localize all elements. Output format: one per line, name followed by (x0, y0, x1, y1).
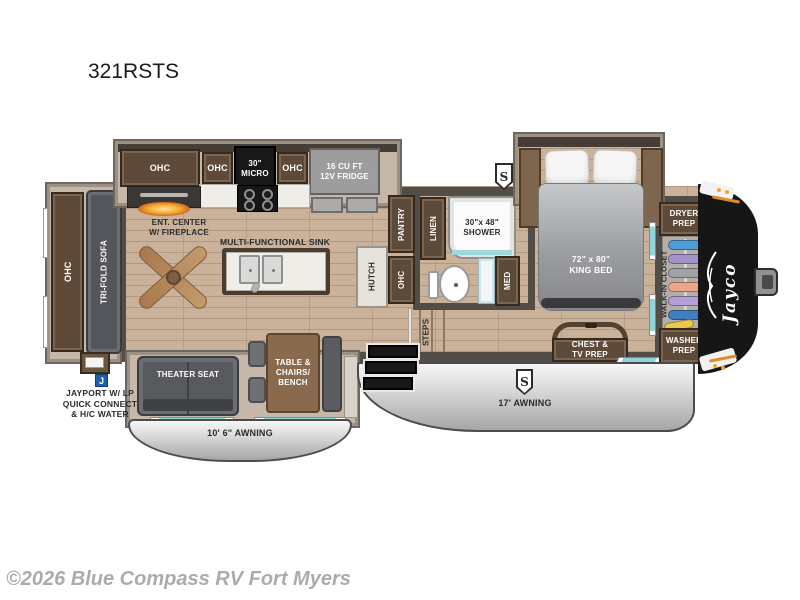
rear-ohc-label: OHC (63, 194, 73, 350)
main-awning-label: 17' AWNING (455, 398, 595, 408)
floorplan-page: 321RSTS OHC TRI-FOLD SOFA OHC OHC 30" MI… (0, 0, 800, 600)
bath-vanity (478, 258, 495, 304)
entry-steps (365, 361, 417, 374)
shower-label: 30"x 48" SHOWER (463, 218, 500, 238)
shower: 30"x 48" SHOWER (448, 196, 516, 259)
dinette-chair (248, 377, 266, 403)
walk-in-closet-label: WALK-IN CLOSET (659, 238, 669, 330)
hitch-pin (754, 268, 778, 296)
kitchen-ohc-label: OHC (150, 163, 171, 173)
watermark: ©2026 Blue Compass RV Fort Myers (6, 568, 351, 591)
rear-window (43, 296, 48, 348)
kitchen-ohc-cabinet: OHC (202, 152, 233, 184)
entry-steps (363, 377, 413, 390)
sink-basin (262, 255, 283, 284)
hutch-ohc-cabinet: OHC (388, 256, 415, 304)
rear-window (43, 208, 48, 258)
hutch-ohc-label: OHC (397, 258, 406, 302)
refrigerator-label: 16 CU FT 12V FRIDGE (320, 162, 369, 182)
page-title: 321RSTS (88, 60, 179, 84)
dinette-table: TABLE & CHAIRS/ BENCH (266, 333, 320, 413)
linen-label: LINEN (429, 199, 438, 258)
ceiling-fan-icon (130, 238, 216, 316)
linen-closet: LINEN (420, 197, 446, 260)
rear-awning-label: 10' 6" AWNING (130, 428, 350, 438)
toilet-tank (428, 271, 439, 299)
pantry-label: PANTRY (397, 197, 406, 251)
jayport-utility (80, 352, 110, 374)
med-cabinet: MED (495, 256, 520, 306)
bedroom-slide-backwall (518, 137, 660, 147)
rear-ohc-cabinet: OHC (51, 192, 84, 352)
microwave-label: 30" MICRO (241, 159, 269, 179)
tri-fold-sofa: TRI-FOLD SOFA (86, 190, 122, 354)
king-bed: 72" x 80" KING BED (538, 183, 644, 311)
kitchen-ohc-cabinet: OHC (120, 149, 200, 187)
kitchen-counter (277, 184, 310, 208)
dinette-label: TABLE & CHAIRS/ BENCH (275, 358, 310, 388)
island-sink-label: MULTI-FUNCTIONAL SINK (208, 237, 342, 247)
pantry-cabinet: PANTRY (388, 195, 415, 253)
dryer-prep-label: DRYER PREP (670, 209, 699, 229)
pillow (592, 149, 637, 187)
entry-landing (344, 356, 358, 418)
kitchen-island (222, 248, 330, 295)
kitchen-ohc-cabinet: OHC (277, 152, 308, 184)
jayco-logo: Jayco (716, 238, 744, 348)
toilet (439, 265, 470, 303)
marker-light (725, 190, 729, 194)
side-window (649, 222, 656, 260)
marker-light (713, 364, 717, 368)
entry-steps (368, 345, 418, 358)
tri-fold-sofa-label: TRI-FOLD SOFA (88, 192, 120, 352)
refrigerator: 16 CU FT 12V FRIDGE (309, 148, 380, 195)
pillow (544, 149, 589, 187)
rear-awning: 10' 6" AWNING (128, 419, 352, 462)
fridge-door (346, 197, 378, 213)
kitchen-ohc-label: OHC (207, 163, 228, 173)
sink-basin (239, 255, 260, 284)
kitchen-counter (199, 184, 238, 208)
hutch-label: HUTCH (358, 248, 386, 306)
dinette-bench (322, 336, 342, 412)
steps-label: STEPS (421, 312, 431, 352)
marker-light (721, 366, 725, 370)
med-label: MED (503, 258, 512, 304)
theater-seat-label: THEATER SEAT (139, 370, 237, 379)
kitchen-ohc-label: OHC (282, 163, 303, 173)
hutch: HUTCH (356, 246, 388, 308)
jayport-badge: J (95, 374, 108, 387)
dinette-chair (248, 341, 266, 367)
jayport-label: JAYPORT W/ LP QUICK CONNECT & H/C WATER (30, 388, 170, 420)
step-line (443, 310, 445, 352)
king-bed-label: 72" x 80" KING BED (569, 254, 612, 275)
marker-light (717, 188, 721, 192)
range-cooktop (237, 185, 278, 212)
fireplace-icon (138, 202, 190, 216)
ent-center-label: ENT. CENTER W/ FIREPLACE (118, 218, 240, 238)
washer-prep-label: WASHER PREP (666, 336, 702, 356)
side-window (649, 294, 656, 336)
chest-tv-label: CHEST & TV PREP (572, 340, 609, 360)
tv-icon (140, 193, 188, 197)
fridge-door (311, 197, 343, 213)
step-line (431, 310, 433, 352)
